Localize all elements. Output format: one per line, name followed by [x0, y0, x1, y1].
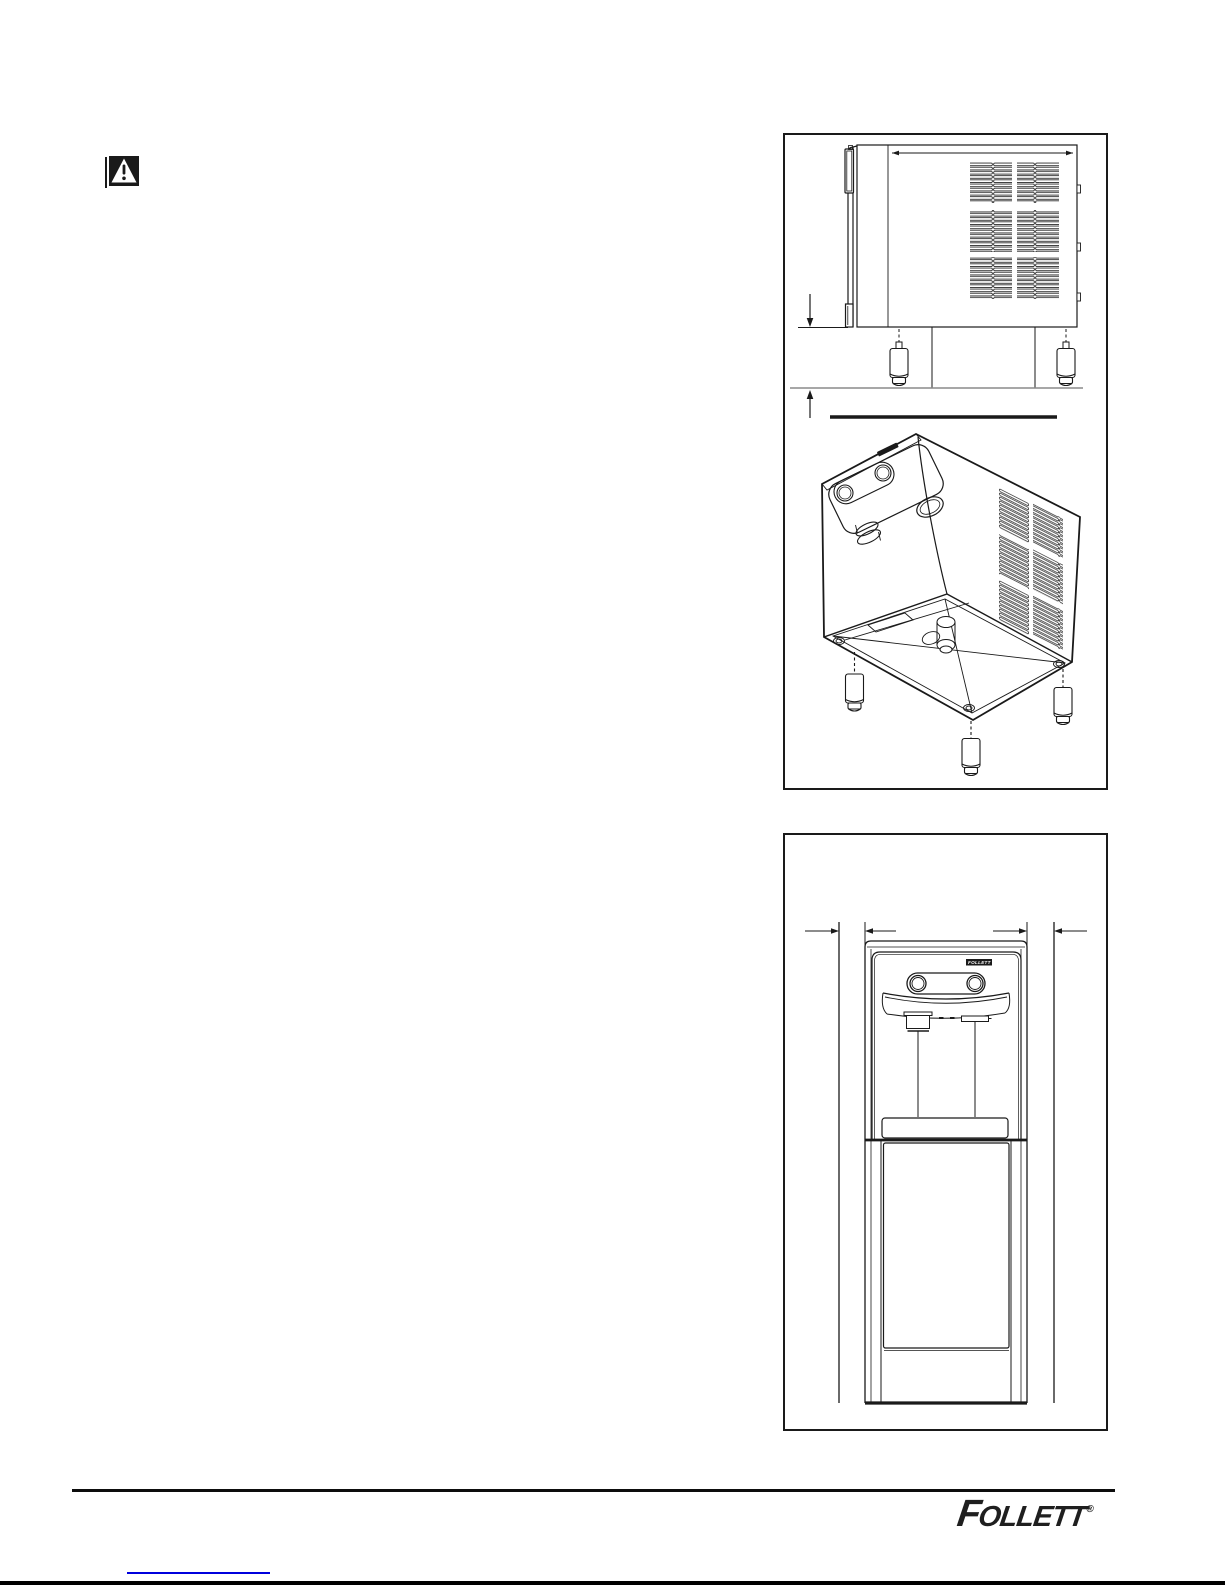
warning-block — [105, 156, 141, 189]
figure-front-clearance: FOLLETT — [783, 833, 1108, 1431]
side-view-leveling-feet — [890, 329, 1075, 386]
figure-leveling-feet — [783, 133, 1108, 790]
front-brand-badge: FOLLETT — [966, 959, 992, 966]
footer-rule — [72, 1489, 1115, 1492]
document-page: FOLLETT — [0, 0, 1225, 1585]
warning-triangle-icon — [109, 156, 139, 187]
dispense-buttons — [910, 976, 983, 992]
dispense-area — [882, 993, 1009, 1117]
isometric-bottom-view — [822, 434, 1080, 776]
page-bottom-edge — [0, 1581, 1225, 1585]
registered-trademark-symbol: ® — [1086, 1504, 1095, 1515]
follett-logo-text: OLLETT — [976, 1501, 1087, 1533]
front-badge-text: FOLLETT — [968, 960, 992, 965]
front-view-machine: FOLLETT — [865, 941, 1027, 1403]
warning-left-rule — [105, 157, 107, 188]
lower-cabinet-door — [881, 1140, 1011, 1403]
footer-link-underline[interactable] — [127, 1572, 270, 1574]
side-view-machine — [845, 145, 1081, 388]
follett-logo: FOLLETT® — [955, 1494, 1130, 1530]
